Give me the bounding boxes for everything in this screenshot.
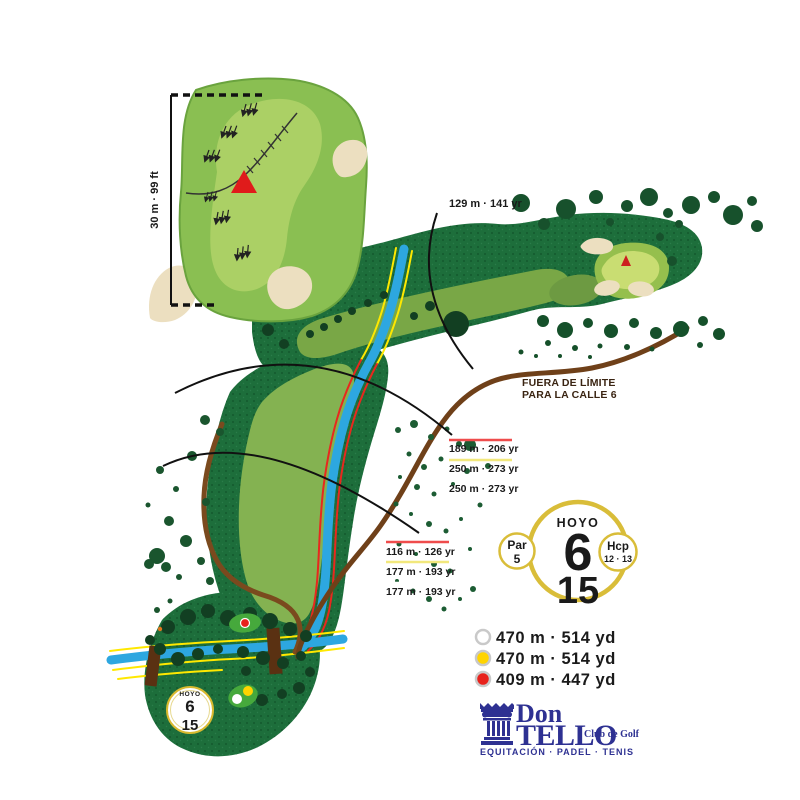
white-tee-icon bbox=[476, 630, 490, 644]
distance-group-1: 189 m · 206 yr 250 m · 273 yr 250 m · 27… bbox=[449, 440, 518, 495]
club-logo: Don TELLO Club de Golf EQUITACIÓN · PADE… bbox=[480, 699, 640, 757]
distance-group-2: 116 m · 126 yr 177 m · 193 yr 177 m · 19… bbox=[386, 542, 455, 598]
g2-white-label: 177 m · 193 yr bbox=[386, 586, 455, 598]
oob-line1: FUERA DE LÍMITE bbox=[522, 376, 616, 389]
hole-map-svg: 129 m · 141 yr 189 m · 206 yr 250 m · 27… bbox=[0, 0, 800, 800]
par-value: 5 bbox=[514, 552, 521, 566]
hole-guide-page: 129 m · 141 yr 189 m · 206 yr 250 m · 27… bbox=[0, 0, 800, 800]
tee-legend: 470 m · 514 yd 470 m · 514 yd 409 m · 44… bbox=[476, 629, 616, 689]
hcp-label: Hcp bbox=[607, 541, 629, 553]
g2-red-label: 116 m · 126 yr bbox=[386, 546, 455, 558]
hcp-value: 12 · 13 bbox=[604, 554, 632, 564]
oob-line2: PARA LA CALLE 6 bbox=[522, 389, 617, 401]
logo-suffix: Club de Golf bbox=[584, 729, 640, 740]
par-label: Par bbox=[507, 538, 527, 552]
mini-hole-badge: HOYO 6 15 bbox=[167, 687, 213, 734]
red-tee-distance: 409 m · 447 yd bbox=[496, 671, 616, 689]
logo-tagline: EQUITACIÓN · PADEL · TENIS bbox=[480, 746, 634, 757]
inset-scale-label: 30 m · 99 ft bbox=[149, 171, 161, 229]
g1-red-label: 189 m · 206 yr bbox=[449, 443, 518, 455]
white-tee-distance: 470 m · 514 yd bbox=[496, 629, 616, 647]
column-icon bbox=[480, 703, 514, 745]
label-129: 129 m · 141 yr bbox=[449, 198, 522, 210]
out-of-bounds-note: FUERA DE LÍMITE PARA LA CALLE 6 bbox=[522, 376, 617, 401]
red-tee-icon bbox=[476, 672, 490, 686]
mini-badge-number: 6 bbox=[185, 697, 194, 716]
g1-yellow-label: 250 m · 273 yr bbox=[449, 463, 518, 475]
g2-yellow-label: 177 m · 193 yr bbox=[386, 566, 455, 578]
hole-handicap: 15 bbox=[557, 570, 599, 612]
hole-badge: HOYO 6 15 Par 5 Hcp 12 · 13 bbox=[500, 502, 637, 612]
marker-dot-orange bbox=[158, 627, 162, 631]
green-detail-inset: 30 m · 99 ft bbox=[149, 78, 367, 322]
mini-badge-handicap: 15 bbox=[182, 717, 199, 734]
yellow-tee-icon bbox=[476, 651, 490, 665]
g1-white-label: 250 m · 273 yr bbox=[449, 483, 518, 495]
yellow-tee-distance: 470 m · 514 yd bbox=[496, 650, 616, 668]
